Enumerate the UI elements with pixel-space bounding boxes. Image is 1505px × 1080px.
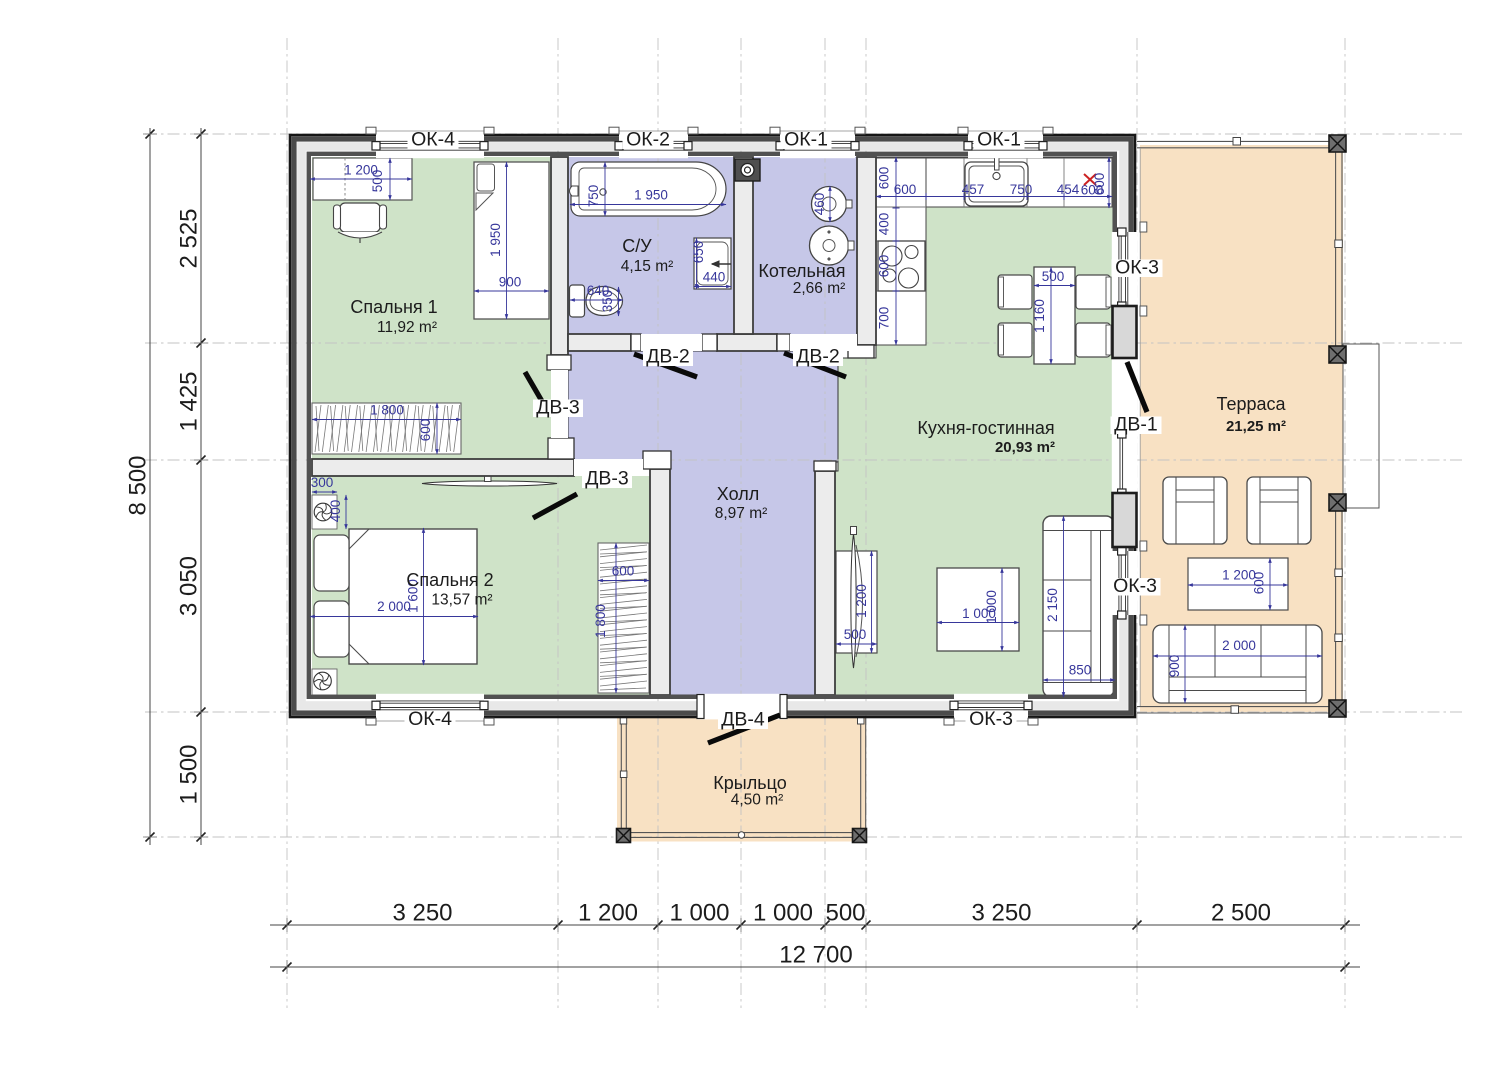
svg-text:650: 650 <box>691 241 706 264</box>
svg-text:Холл: Холл <box>717 484 759 504</box>
svg-text:4,50 m²: 4,50 m² <box>731 792 784 809</box>
svg-text:500: 500 <box>370 170 385 193</box>
svg-text:3 050: 3 050 <box>176 556 203 616</box>
svg-text:ОК-4: ОК-4 <box>411 129 455 151</box>
svg-text:ДВ-2: ДВ-2 <box>646 346 690 368</box>
svg-text:12 700: 12 700 <box>779 942 852 969</box>
svg-text:ОК-3: ОК-3 <box>1113 575 1157 597</box>
svg-text:850: 850 <box>1069 663 1092 678</box>
svg-text:Спальня 1: Спальня 1 <box>350 297 437 317</box>
svg-text:ДВ-3: ДВ-3 <box>585 468 629 490</box>
svg-text:750: 750 <box>586 185 601 208</box>
svg-text:4,15 m²: 4,15 m² <box>621 258 674 275</box>
svg-text:600: 600 <box>418 419 433 442</box>
svg-text:Спальня 2: Спальня 2 <box>406 570 493 590</box>
svg-text:400: 400 <box>877 213 892 236</box>
svg-text:1 425: 1 425 <box>176 371 203 431</box>
svg-text:900: 900 <box>499 275 522 290</box>
svg-text:21,25 m²: 21,25 m² <box>1226 418 1286 435</box>
svg-text:1 800: 1 800 <box>593 604 608 638</box>
svg-text:8,97 m²: 8,97 m² <box>715 505 768 522</box>
svg-text:ОК-1: ОК-1 <box>784 129 828 151</box>
svg-text:300: 300 <box>311 475 334 490</box>
svg-text:13,57 m²: 13,57 m² <box>431 592 492 609</box>
svg-text:750: 750 <box>1010 182 1033 197</box>
svg-text:1 200: 1 200 <box>578 900 638 927</box>
svg-text:3 250: 3 250 <box>392 900 452 927</box>
svg-text:2 000: 2 000 <box>1222 638 1256 653</box>
svg-text:ДВ-2: ДВ-2 <box>796 346 840 368</box>
svg-text:600: 600 <box>1092 173 1107 196</box>
svg-text:500: 500 <box>825 900 865 927</box>
svg-text:600: 600 <box>612 564 635 579</box>
svg-text:1 000: 1 000 <box>669 900 729 927</box>
svg-text:ДВ-4: ДВ-4 <box>721 709 765 731</box>
svg-text:Котельная: Котельная <box>758 261 845 281</box>
svg-text:1 000: 1 000 <box>984 590 999 624</box>
svg-text:8 500: 8 500 <box>125 455 152 515</box>
svg-text:2 500: 2 500 <box>1211 900 1271 927</box>
svg-text:2 150: 2 150 <box>1045 588 1060 622</box>
svg-text:457: 457 <box>962 182 985 197</box>
svg-text:600: 600 <box>894 182 917 197</box>
svg-text:1 950: 1 950 <box>488 223 503 257</box>
svg-text:1 200: 1 200 <box>854 584 869 618</box>
svg-text:600: 600 <box>877 167 892 190</box>
svg-text:3 250: 3 250 <box>971 900 1031 927</box>
svg-text:500: 500 <box>1042 269 1065 284</box>
svg-text:Кухня-гостинная: Кухня-гостинная <box>917 418 1054 438</box>
svg-text:2 525: 2 525 <box>176 208 203 268</box>
svg-text:400: 400 <box>328 500 343 523</box>
svg-text:440: 440 <box>703 270 726 285</box>
svg-text:1 500: 1 500 <box>176 744 203 804</box>
svg-text:1 950: 1 950 <box>634 188 668 203</box>
svg-text:1 160: 1 160 <box>1032 299 1047 333</box>
svg-text:ОК-3: ОК-3 <box>1115 257 1159 279</box>
svg-text:900: 900 <box>1167 655 1182 678</box>
svg-text:ОК-3: ОК-3 <box>969 708 1013 730</box>
svg-text:С/У: С/У <box>622 236 652 256</box>
svg-text:600: 600 <box>877 255 892 278</box>
svg-text:11,92 m²: 11,92 m² <box>377 319 437 336</box>
svg-text:ДВ-1: ДВ-1 <box>1114 414 1158 436</box>
svg-text:ОК-2: ОК-2 <box>626 129 670 151</box>
svg-text:2,66 m²: 2,66 m² <box>793 280 846 297</box>
svg-text:ОК-4: ОК-4 <box>408 708 452 730</box>
svg-text:700: 700 <box>877 307 892 330</box>
svg-text:350: 350 <box>600 290 615 313</box>
svg-text:Крыльцо: Крыльцо <box>713 773 786 793</box>
svg-text:1 800: 1 800 <box>370 403 404 418</box>
svg-text:ДВ-3: ДВ-3 <box>536 397 580 419</box>
svg-text:454: 454 <box>1057 182 1080 197</box>
svg-text:20,93 m²: 20,93 m² <box>995 439 1055 456</box>
svg-text:1 000: 1 000 <box>753 900 813 927</box>
svg-text:600: 600 <box>1252 572 1267 595</box>
svg-text:500: 500 <box>844 627 867 642</box>
svg-text:ОК-1: ОК-1 <box>977 129 1021 151</box>
svg-text:Терраса: Терраса <box>1216 394 1286 414</box>
svg-text:460: 460 <box>812 193 827 216</box>
